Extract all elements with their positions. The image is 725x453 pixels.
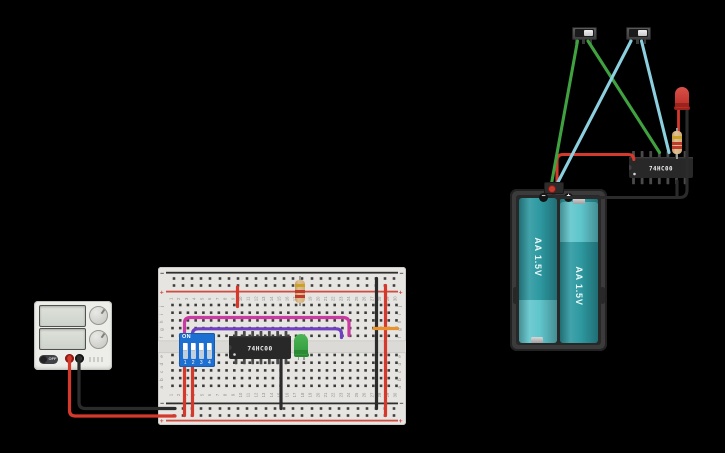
positive-terminal-cap-icon	[548, 185, 557, 194]
resistor-right[interactable]	[671, 127, 685, 160]
led-red[interactable]	[674, 87, 690, 111]
resistor-band-red	[672, 146, 682, 149]
resistor-band-red	[672, 142, 682, 145]
switch1-green-wire-battery[interactable]	[552, 41, 578, 184]
battery-terminal-connector[interactable]	[544, 182, 564, 194]
switch2-cyan-wire-ic[interactable]	[642, 41, 670, 153]
wire-layer-right	[0, 0, 725, 453]
resistor-band-gold	[672, 136, 682, 139]
battery-label-1: AA 1.5V	[533, 237, 543, 276]
battery-label-2: AA 1.5V	[574, 266, 584, 305]
circuit-canvas[interactable]: OFF 123456789101112131415161718192021222…	[0, 0, 725, 453]
switch2-cyan-wire-battery[interactable]	[557, 41, 632, 185]
led-stripe	[675, 103, 689, 107]
resistor-body[interactable]	[672, 131, 682, 154]
